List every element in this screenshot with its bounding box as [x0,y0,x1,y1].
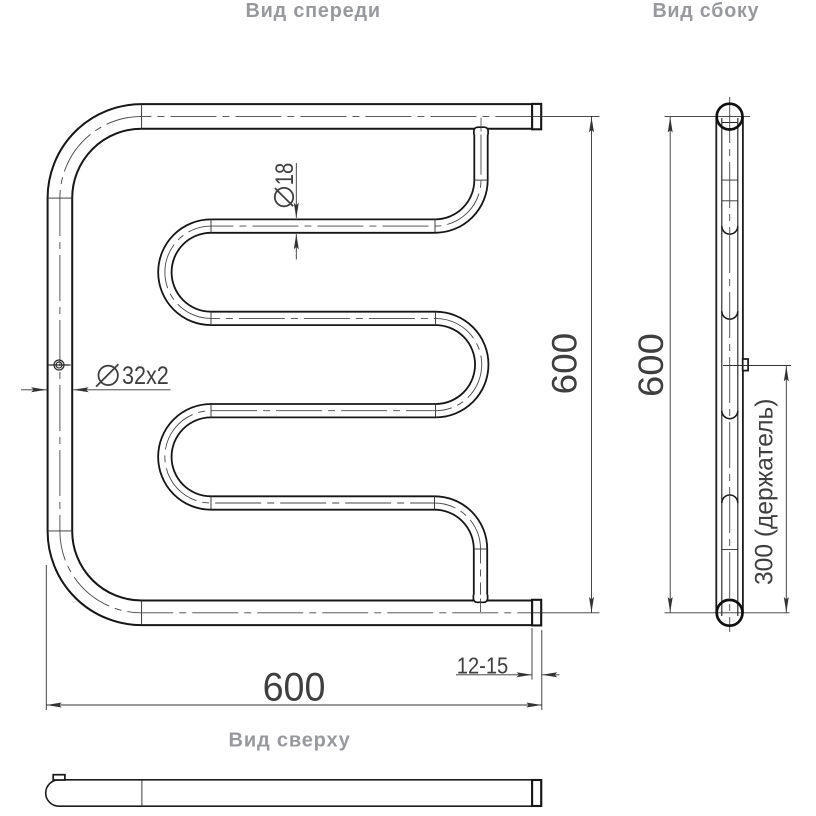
svg-text:18: 18 [271,163,299,186]
svg-text:12-15: 12-15 [457,652,508,678]
svg-text:600: 600 [263,665,326,709]
svg-text:Вид спереди: Вид спереди [246,0,381,22]
svg-text:300 (держатель): 300 (держатель) [751,399,779,586]
svg-text:600: 600 [632,333,671,397]
svg-text:32x2: 32x2 [122,362,169,390]
svg-text:Вид сверху: Вид сверху [229,730,351,752]
svg-text:Вид сбоку: Вид сбоку [652,0,759,22]
svg-text:600: 600 [545,333,584,395]
